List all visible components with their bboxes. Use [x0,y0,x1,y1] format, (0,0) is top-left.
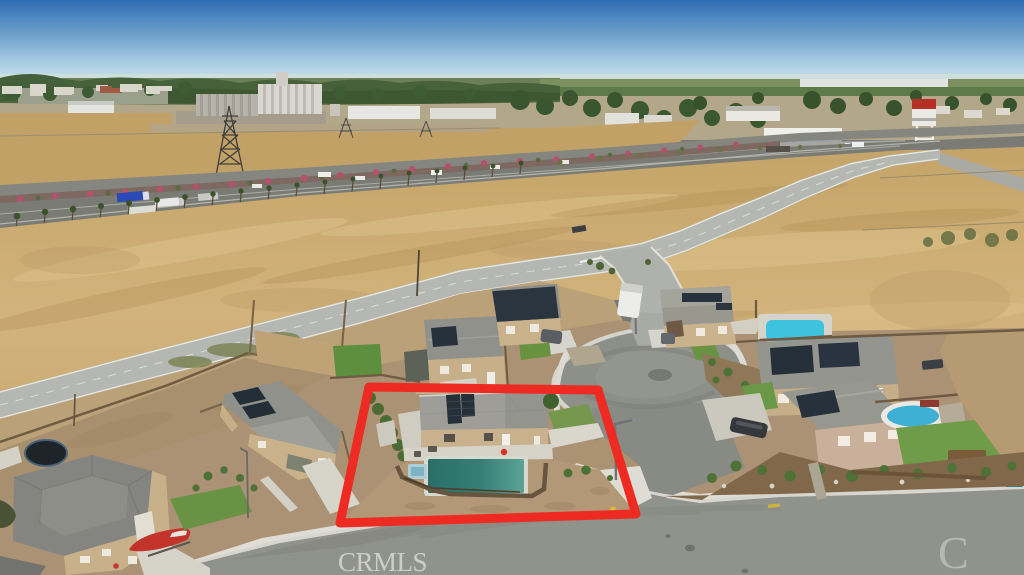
svg-text:CRMLS: CRMLS [338,547,427,575]
svg-text:C: C [938,527,969,575]
